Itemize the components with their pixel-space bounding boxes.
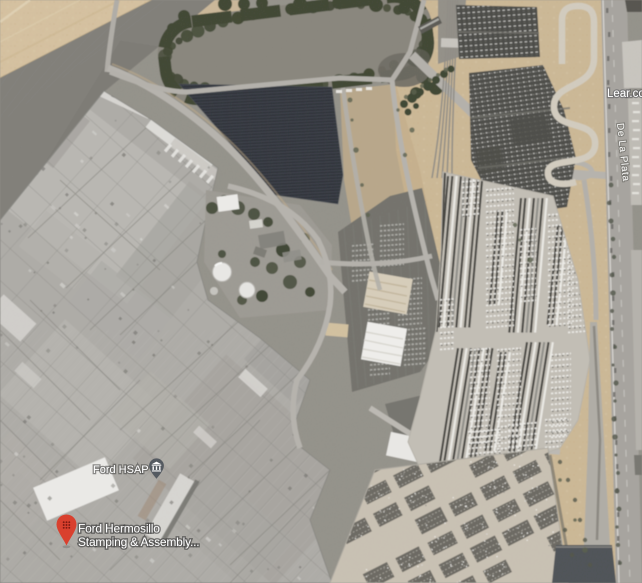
svg-text:Stamping & Assembly...: Stamping & Assembly... [78, 535, 199, 549]
svg-text:Ford HSAP: Ford HSAP [93, 464, 149, 476]
svg-text:Ford Hermosillo: Ford Hermosillo [78, 522, 160, 536]
svg-text:Lear.co: Lear.co [607, 88, 642, 100]
